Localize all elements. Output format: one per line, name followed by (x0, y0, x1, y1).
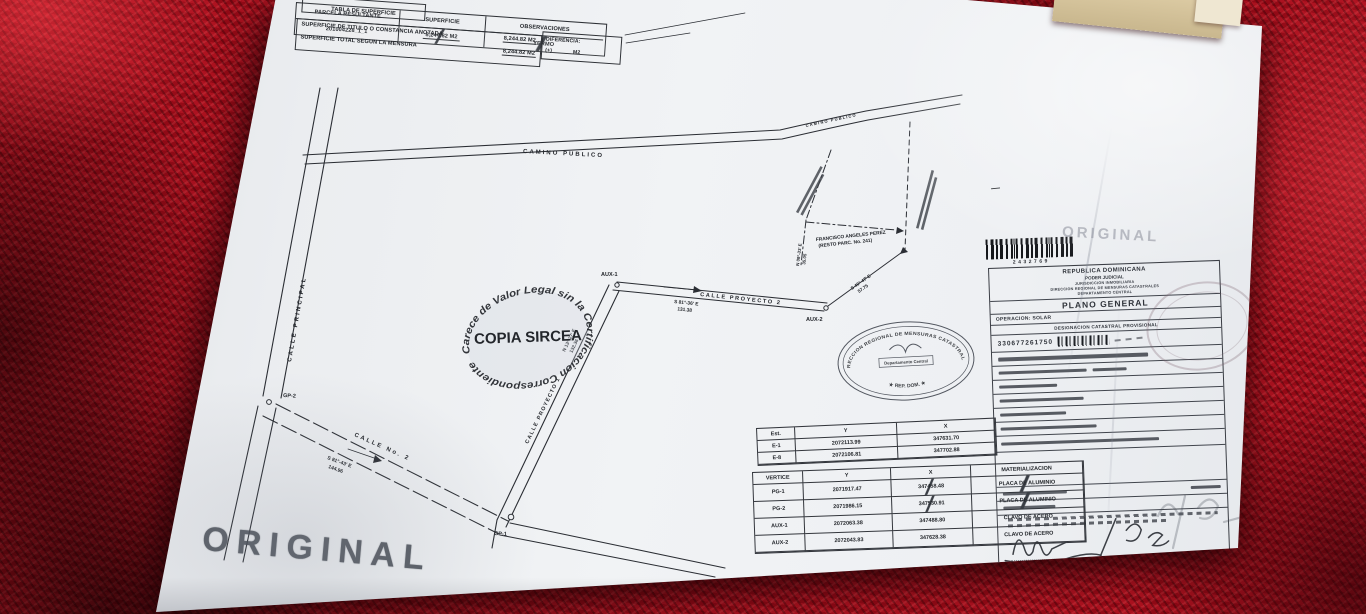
calle-no2-road (263, 416, 499, 534)
table-cell: PG-1 (753, 483, 804, 502)
compass-rose: N (989, 137, 1000, 209)
leader-line (625, 13, 745, 35)
paper-wrap: TABLA DE SUPERFICIE SUPERFICIE DE TITULO… (0, 0, 1366, 614)
bearing-arrow (348, 449, 377, 459)
svg-text:S 81°-36' E: S 81°-36' E (674, 299, 700, 308)
compass-east-west-line (991, 184, 1000, 189)
beige-folder-highlight (1194, 0, 1244, 26)
photo-scene: TABLA DE SUPERFICIE SUPERFICIE DE TITULO… (0, 0, 1366, 614)
aux1-label: AUX-1 (601, 272, 618, 278)
gp1-label: GP-1 (494, 531, 507, 538)
faint-edge-stamp-inner (1150, 283, 1254, 369)
mensuras-seal-stamp: DIRECCION REGIONAL DE MENSURAS CATASTRAL… (836, 318, 976, 403)
copia-sircea-stamp: Carece de Valor Legal sin la Certificaci… (448, 269, 608, 407)
bearing-diagonal: S 46°-47' E 57.75 (850, 273, 876, 296)
svg-text:35.05: 35.05 (801, 253, 807, 265)
gp1-marker (508, 514, 514, 520)
original-watermark-faint: ORIGINAL (1062, 223, 1160, 245)
neighbor-owner-label: FRANCISCO ANGELES PEREZ (RESTO PARC. No.… (816, 230, 887, 250)
aux2-marker (824, 306, 828, 310)
seal-bottom-text: ★ REP. DOM. ★ (888, 380, 927, 391)
aux1-marker (615, 283, 619, 287)
handwritten-dashes (1115, 337, 1143, 342)
table-cell: 347628.38 (893, 528, 974, 548)
aux2-label: AUX-2 (806, 317, 823, 323)
survey-plan-paper: TABLA DE SUPERFICIE SUPERFICIE DE TITULO… (0, 0, 1366, 614)
camino-publico-road (305, 104, 960, 164)
bearing-arrow (664, 287, 697, 290)
bearing-west: N 09°-33' E 35.05 (795, 243, 809, 267)
calle-no2-road (510, 523, 725, 568)
table-cell: AUX-1 (755, 517, 806, 536)
camino-publico-road (303, 95, 962, 155)
table-cell: 2072043.83 (805, 531, 894, 551)
svg-text:131.38: 131.38 (677, 306, 693, 314)
vertices-table: VERTICE Y X MATERIALIZACION PG-1 2071917… (752, 460, 1087, 554)
seal-center-text: Departamento Central (884, 358, 928, 365)
mini-barcode-icon (1058, 335, 1110, 347)
faint-handwriting (1140, 478, 1260, 568)
calle-principal-label: CALLE PRINCIPAL (287, 276, 308, 362)
table-cell: PG-2 (754, 500, 805, 519)
table-cell: AUX-2 (755, 534, 806, 553)
neighbor-smudge-left (796, 166, 939, 230)
barcode-block: 2432769 (986, 236, 1077, 266)
gp2-label: GP-2 (283, 393, 296, 400)
calle-no2-road (276, 404, 508, 521)
boundary-dashdot (806, 222, 896, 230)
seal-bird-icon (889, 344, 921, 353)
calle-no2-road (500, 535, 715, 577)
camino-publico-label: CAMINO PUBLICO (523, 149, 604, 159)
designacion-number: 330677261750 (998, 338, 1054, 347)
gp2-marker (267, 400, 272, 405)
svg-text:★ REP. DOM. ★: ★ REP. DOM. ★ (888, 380, 927, 391)
table-cell: CLAVO DE ACERO (973, 524, 1086, 545)
bearing-proyecto2: S 81°-36' E 131.38 (673, 299, 699, 315)
leader-line (626, 33, 690, 43)
camino-publico-label-2: CAMINO PUBLICO (805, 112, 857, 128)
table-cell: E-8 (758, 451, 796, 465)
boundary-dashed (905, 122, 910, 250)
agrimensor-label: AGRIMENSOR (1011, 558, 1075, 567)
